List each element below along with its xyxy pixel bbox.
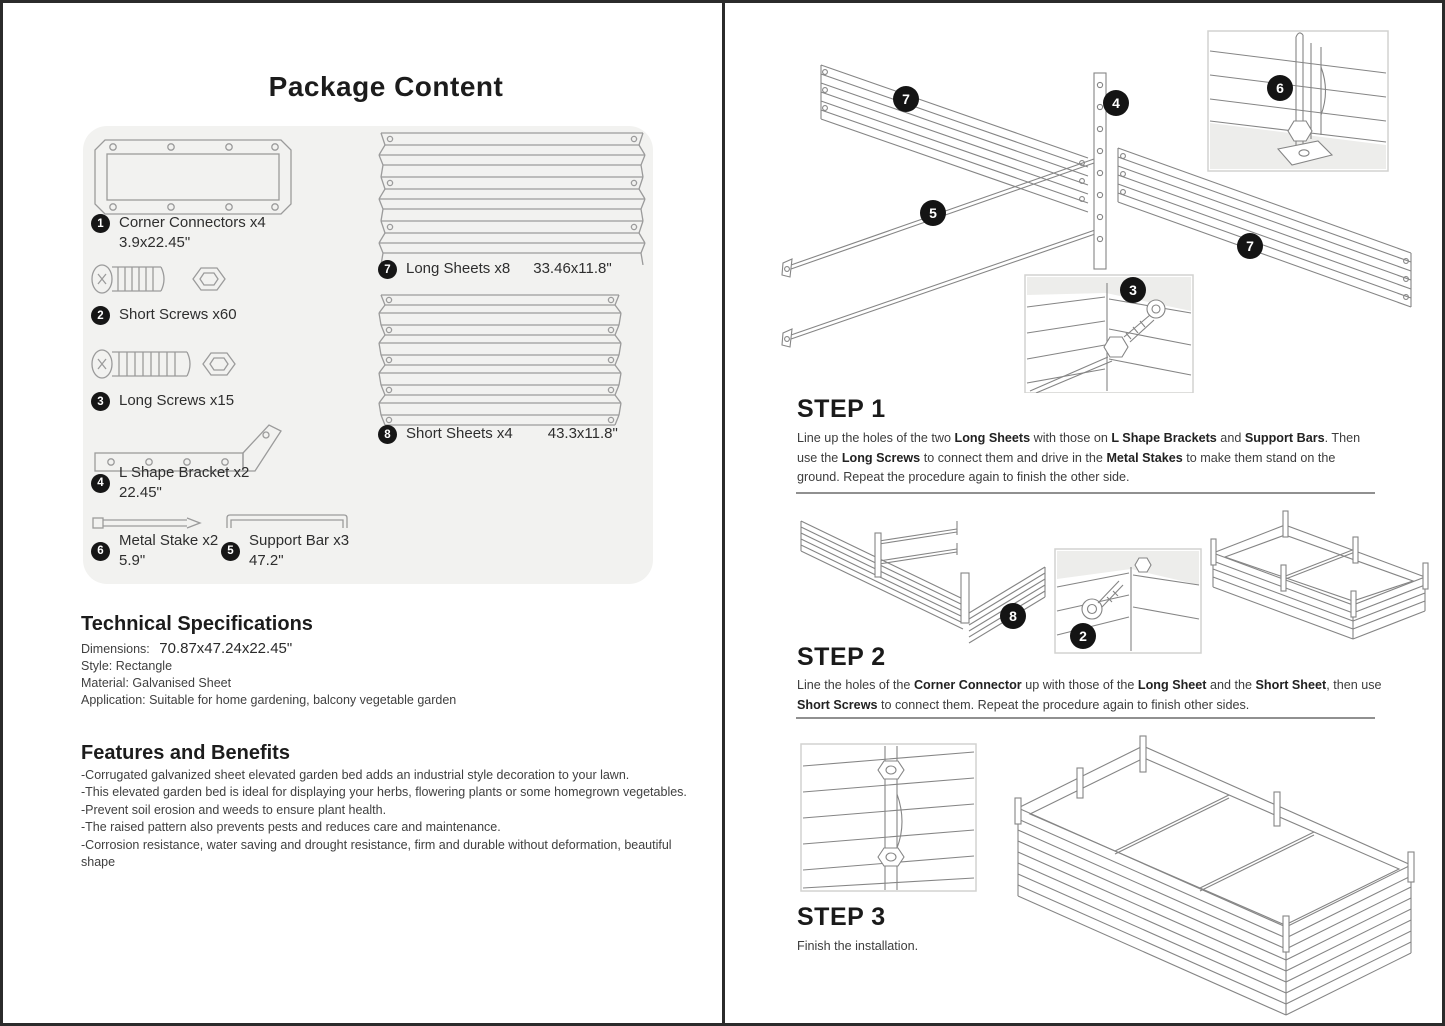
- part-badge: 3: [91, 392, 110, 411]
- step1-diagram: [726, 11, 1428, 393]
- part-item-corner-connectors: 1 Corner Connectors x4 3.9x22.45": [91, 213, 266, 252]
- diagram-badge-metal-stake: 6: [1267, 75, 1293, 101]
- spec-dimensions: Dimensions: 70.87x47.24x22.45": [81, 640, 681, 658]
- spec-style: Style: Rectangle: [81, 658, 681, 675]
- part-label: Corner Connectors x4: [119, 214, 266, 231]
- step1-title: STEP 1: [797, 395, 886, 424]
- separator: [796, 492, 1375, 494]
- part-badge: 1: [91, 214, 110, 233]
- part-label: Metal Stake x2: [119, 532, 218, 549]
- part-dim: 3.9x22.45": [119, 234, 190, 251]
- step2-body: Line the holes of the Corner Connector u…: [797, 676, 1389, 715]
- diagram-badge-support-bar: 5: [920, 200, 946, 226]
- part-dim: 5.9": [119, 552, 145, 569]
- part-dim: 47.2": [249, 552, 284, 569]
- feature-item: -Corrugated galvanized sheet elevated ga…: [81, 767, 701, 784]
- step3-diagram: [793, 730, 1445, 1022]
- tech-specs-block: Dimensions: 70.87x47.24x22.45" Style: Re…: [81, 640, 681, 709]
- feature-item: -Corrosion resistance, water saving and …: [81, 837, 701, 872]
- long-screw-drawing: [89, 343, 249, 385]
- features-list: -Corrugated galvanized sheet elevated ga…: [81, 767, 701, 871]
- step1-body: Line up the holes of the two Long Sheets…: [797, 429, 1379, 488]
- part-label: Short Sheets x4: [406, 424, 513, 444]
- feature-item: -The raised pattern also prevents pests …: [81, 819, 701, 836]
- support-bar-drawing: [223, 511, 351, 529]
- part-item-short-sheets: 8 Short Sheets x4 43.3x11.8": [378, 424, 618, 444]
- column-divider: [722, 3, 725, 1026]
- part-label: Short Screws x60: [119, 305, 237, 325]
- diagram-badge-short-sheet: 8: [1000, 603, 1026, 629]
- feature-item: -Prevent soil erosion and weeds to ensur…: [81, 802, 701, 819]
- part-badge: 7: [378, 260, 397, 279]
- spec-application: Application: Suitable for home gardening…: [81, 692, 681, 709]
- instruction-manual-page: Package Content: [0, 0, 1445, 1026]
- part-dim: 43.3x11.8": [548, 424, 618, 444]
- part-badge: 6: [91, 542, 110, 561]
- part-badge: 8: [378, 425, 397, 444]
- separator: [796, 717, 1375, 719]
- corner-connector-drawing: [93, 136, 293, 218]
- short-sheets-drawing: [375, 293, 625, 429]
- feature-item: -This elevated garden bed is ideal for d…: [81, 784, 701, 801]
- part-item-long-screws: 3 Long Screws x15: [91, 391, 234, 411]
- part-badge: 4: [91, 474, 110, 493]
- part-item-short-screws: 2 Short Screws x60: [91, 305, 237, 325]
- part-badge: 2: [91, 306, 110, 325]
- part-item-long-sheets: 7 Long Sheets x8 33.46x11.8": [378, 259, 612, 279]
- diagram-badge-long-sheet-right: 7: [1237, 233, 1263, 259]
- step3-title: STEP 3: [797, 903, 886, 932]
- diagram-badge-l-shape-bracket: 4: [1103, 90, 1129, 116]
- page-title: Package Content: [98, 71, 674, 103]
- diagram-badge-short-screw: 2: [1070, 623, 1096, 649]
- tech-specs-heading: Technical Specifications: [81, 613, 313, 636]
- part-dim: 33.46x11.8": [533, 259, 611, 279]
- step3-body: Finish the installation.: [797, 937, 1389, 957]
- metal-stake-drawing: [91, 515, 203, 531]
- spec-material: Material: Galvanised Sheet: [81, 675, 681, 692]
- part-label: Long Sheets x8: [406, 259, 510, 279]
- part-label: Support Bar x3: [249, 532, 349, 549]
- short-screw-drawing: [89, 258, 239, 300]
- diagram-badge-long-sheet: 7: [893, 86, 919, 112]
- part-item-l-shape-bracket: 4 L Shape Bracket x2 22.45": [91, 463, 249, 502]
- step2-diagram: [793, 505, 1445, 655]
- part-badge: 5: [221, 542, 240, 561]
- diagram-badge-long-screw: 3: [1120, 277, 1146, 303]
- long-sheets-drawing: [375, 131, 649, 265]
- part-dim: 22.45": [119, 484, 162, 501]
- step2-title: STEP 2: [797, 643, 886, 672]
- part-label: L Shape Bracket x2: [119, 464, 249, 481]
- part-item-metal-stake: 6 Metal Stake x2 5.9": [91, 531, 218, 570]
- features-heading: Features and Benefits: [81, 742, 290, 765]
- part-item-support-bar: 5 Support Bar x3 47.2": [221, 531, 349, 570]
- part-label: Long Screws x15: [119, 391, 234, 411]
